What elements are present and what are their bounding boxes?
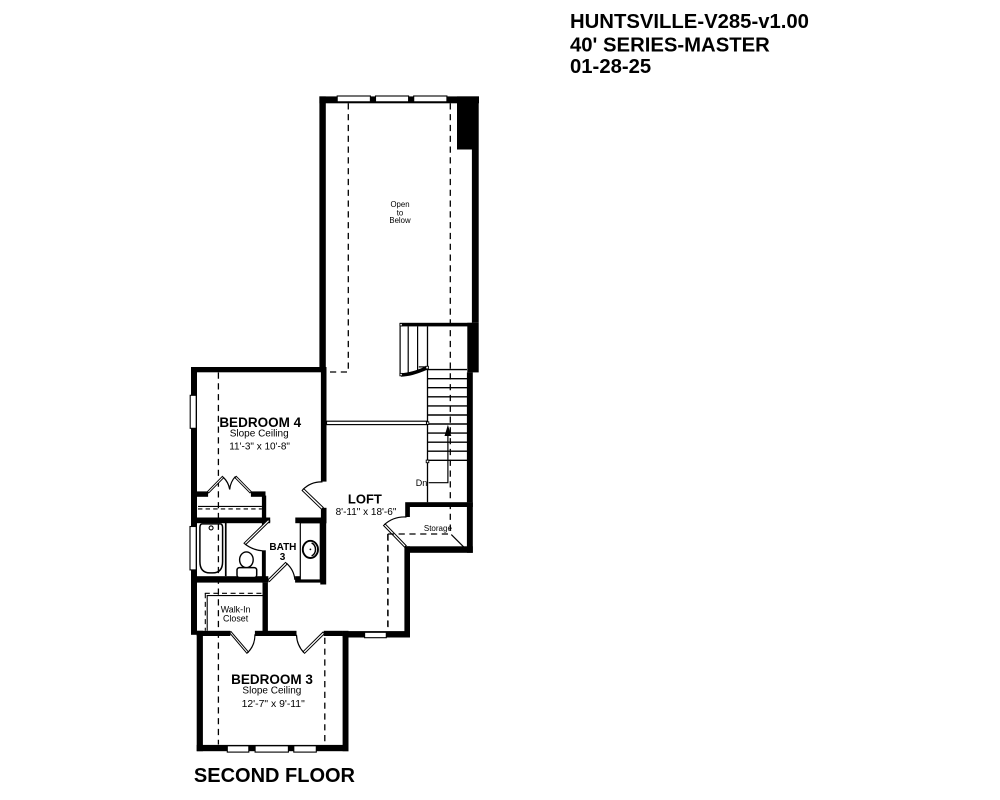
svg-text:3: 3 <box>280 552 286 563</box>
svg-text:Dn: Dn <box>416 478 428 488</box>
svg-text:SECOND FLOOR: SECOND FLOOR <box>194 765 356 787</box>
svg-text:LOFT: LOFT <box>348 492 382 507</box>
svg-text:Below: Below <box>389 216 411 225</box>
svg-text:Slope Ceiling: Slope Ceiling <box>230 428 289 439</box>
svg-text:Slope Ceiling: Slope Ceiling <box>242 686 301 697</box>
svg-text:HUNTSVILLE-V285-v1.00: HUNTSVILLE-V285-v1.00 <box>570 11 809 33</box>
svg-text:01-28-25: 01-28-25 <box>570 56 651 78</box>
svg-text:12'-7" x 9'-11": 12'-7" x 9'-11" <box>242 699 305 710</box>
svg-text:8'-11" x 18'-6": 8'-11" x 18'-6" <box>336 507 397 518</box>
svg-text:40' SERIES-MASTER: 40' SERIES-MASTER <box>570 35 770 57</box>
svg-text:Storage: Storage <box>424 524 453 533</box>
svg-text:Closet: Closet <box>223 614 249 624</box>
svg-text:11'-3" x 10'-8": 11'-3" x 10'-8" <box>229 441 290 452</box>
